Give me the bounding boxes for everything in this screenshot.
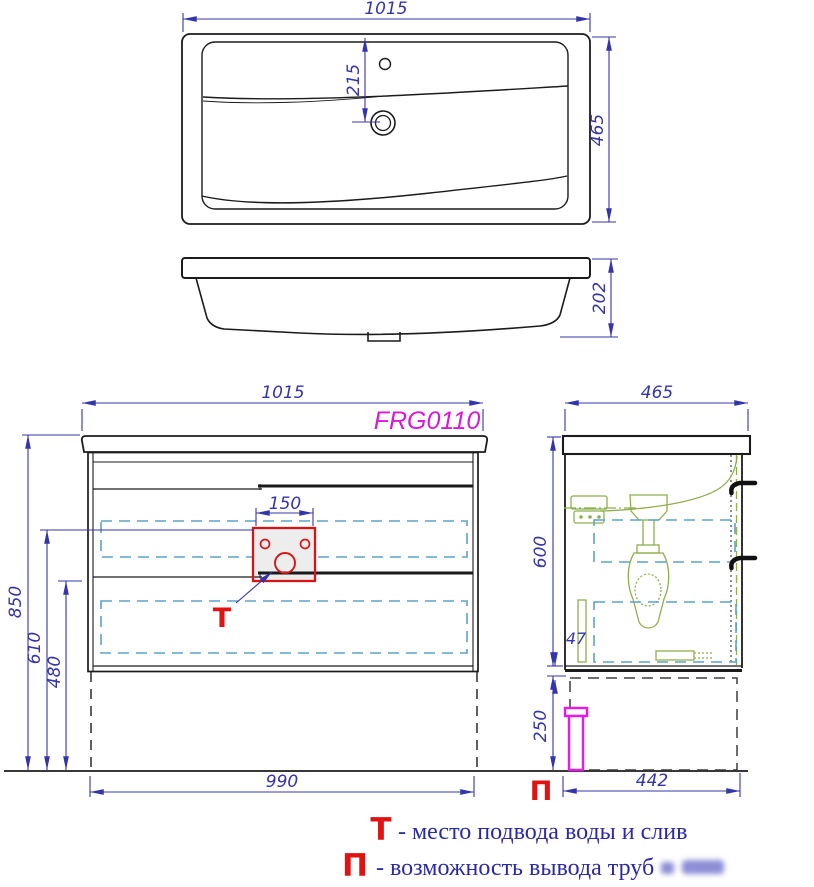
- pipe-outlet-tube: [569, 716, 583, 770]
- legend: Т - место подвода воды и слив П - возмож…: [342, 812, 724, 884]
- drawer2-internal-outline: [101, 601, 467, 653]
- dim-height-supply: 610: [25, 530, 253, 770]
- profile-bowl: [196, 278, 570, 334]
- dim-label-body-height: 600: [531, 536, 551, 568]
- door-handle-top: [731, 483, 755, 493]
- basin-bottom-curve: [202, 176, 567, 203]
- technical-drawing-page: 1015 465 215 202 1015: [0, 0, 814, 887]
- bracket-dot: [597, 515, 601, 519]
- faucet-hole-inner: [376, 116, 391, 131]
- top-view: 1015 465 215: [182, 0, 616, 224]
- siphon-collar: [637, 545, 659, 553]
- siphon-assembly: [564, 456, 737, 662]
- siphon-bottle: [628, 553, 669, 628]
- dim-label-gap: 47: [566, 629, 587, 648]
- dim-label-height-supply: 610: [25, 632, 45, 664]
- dim-side-depth: 465: [565, 383, 748, 431]
- sink-rim-outline: [182, 34, 590, 224]
- dim-label-side-depth: 465: [641, 383, 673, 403]
- faucet-hole-outer: [371, 111, 395, 135]
- marker-t-front: Т: [213, 603, 232, 634]
- dim-top-width: 1015: [183, 0, 590, 32]
- bracket-dot: [579, 515, 583, 519]
- dim-label-cutout-width: 150: [269, 494, 301, 514]
- profile-view: 202: [182, 258, 618, 341]
- marker-p-side: П: [530, 776, 553, 807]
- front-sink-top: [82, 436, 487, 452]
- basin-underside-curve: [600, 456, 737, 511]
- side-drawer2-outline: [594, 602, 736, 662]
- dim-label-height-total: 850: [6, 586, 26, 618]
- overflow-hole: [380, 59, 391, 70]
- dim-faucet-offset: 215: [344, 38, 380, 122]
- dim-top-depth: 465: [588, 37, 616, 222]
- dim-label-plinth-height: 250: [531, 710, 551, 742]
- dim-base-depth: 442: [563, 771, 740, 797]
- door-handle-bottom: [731, 558, 755, 568]
- dim-label-top-depth: 465: [588, 114, 608, 146]
- side-countertop: [563, 436, 750, 454]
- legend-marker-p: П: [342, 848, 368, 884]
- legend-text-t: - место подвода воды и слив: [398, 819, 687, 845]
- dim-label-front-width: 1015: [261, 383, 304, 403]
- profile-rim: [182, 258, 590, 278]
- dim-gap-47: 47: [555, 629, 587, 693]
- dim-label-top-width: 1015: [364, 0, 407, 19]
- legend-text-p: - возможность вывода труб: [376, 855, 654, 881]
- dim-plinth-height: 250: [531, 676, 566, 770]
- front-view: 1015 FRG0110 150 Т: [6, 383, 487, 797]
- dim-label-faucet-offset: 215: [344, 64, 364, 96]
- bracket-dot: [588, 515, 592, 519]
- basin-deck-edge: [203, 86, 568, 99]
- wall-bracket-upper: [571, 496, 607, 509]
- dim-label-base-width: 990: [266, 772, 298, 792]
- dim-body-height: 600: [531, 437, 563, 666]
- product-code-label: FRG0110: [374, 407, 481, 435]
- dim-label-height-drain: 480: [45, 656, 65, 688]
- dim-height-drain: 480: [45, 581, 82, 770]
- redacted-text: [661, 860, 724, 874]
- dim-label-base-depth: 442: [636, 771, 668, 791]
- side-view: 465: [530, 383, 755, 807]
- legend-marker-t: Т: [370, 812, 391, 848]
- plinth-hidden-outline: [570, 678, 737, 770]
- dim-base-width: 990: [90, 772, 474, 797]
- drawing-svg: 1015 465 215 202 1015: [0, 0, 814, 887]
- pipe-outlet-cap: [565, 708, 587, 716]
- side-rail-horizontal: [656, 651, 694, 660]
- dim-height-total: 850: [6, 435, 80, 770]
- dim-label-profile-height: 202: [590, 282, 610, 314]
